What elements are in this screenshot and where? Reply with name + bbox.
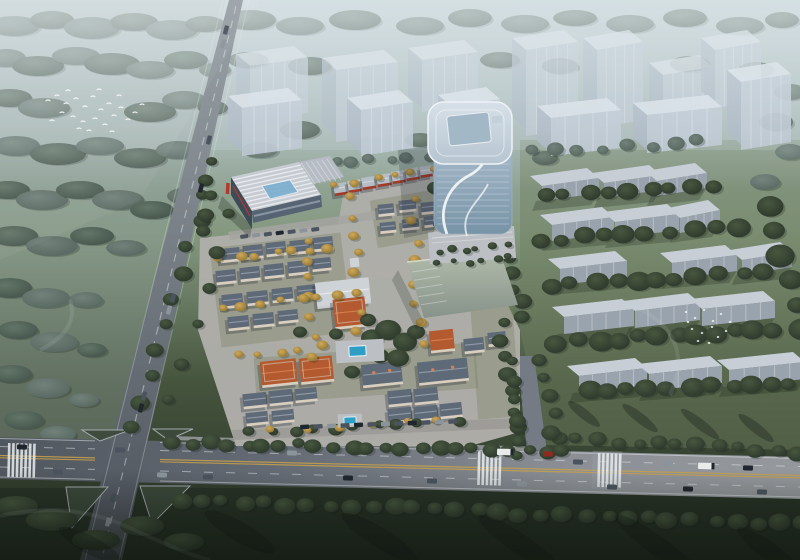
bird xyxy=(717,336,720,338)
car xyxy=(17,444,27,449)
street-tree xyxy=(498,318,510,327)
street-tree xyxy=(146,343,164,357)
lawn-tree xyxy=(561,276,577,289)
forest-tree xyxy=(106,240,146,256)
lawn-tree xyxy=(740,320,764,339)
lawn-tree xyxy=(635,380,657,397)
street-tree xyxy=(174,358,190,370)
autumn-tree xyxy=(345,192,355,200)
parked-car xyxy=(354,422,363,427)
bird xyxy=(687,321,690,323)
street-tree xyxy=(380,443,393,453)
truck-cab xyxy=(711,463,714,469)
lawn-tree xyxy=(647,142,660,152)
street-tree xyxy=(650,435,667,448)
street-tree xyxy=(541,425,560,440)
lawn-tree xyxy=(617,183,639,200)
truck-cab xyxy=(510,449,513,455)
planter-tree xyxy=(504,253,512,259)
street-tree xyxy=(746,444,764,458)
autumn-tree xyxy=(312,294,321,301)
street-tree xyxy=(731,441,744,451)
lawn-tree xyxy=(525,145,538,155)
street-tree xyxy=(358,442,374,454)
lawn-tree xyxy=(684,220,706,237)
village-house xyxy=(257,358,299,391)
parked-car xyxy=(381,421,390,426)
lawn-tree xyxy=(619,139,635,151)
lawn-tree xyxy=(665,273,682,286)
red-sign xyxy=(226,183,230,194)
autumn-tree xyxy=(354,249,363,256)
planter-tree xyxy=(505,241,513,247)
lawn-tree xyxy=(762,323,782,339)
planter-tree xyxy=(488,242,497,249)
street-tree xyxy=(514,311,530,324)
autumn-tree xyxy=(276,296,284,302)
bird xyxy=(697,340,700,342)
parked-car xyxy=(367,422,376,427)
street-tree xyxy=(507,357,518,366)
street-tree xyxy=(242,426,254,435)
forest-tree xyxy=(26,378,70,398)
bird xyxy=(708,342,711,344)
bird xyxy=(725,330,728,332)
parked-car xyxy=(340,423,349,428)
street-tree xyxy=(362,154,374,164)
autumn-tree xyxy=(302,257,313,265)
lawn-tree xyxy=(707,220,725,234)
lawn-tree xyxy=(597,145,608,154)
street-tree xyxy=(178,241,192,252)
lawn-tree xyxy=(634,226,654,241)
street-tree xyxy=(549,408,563,419)
bird xyxy=(720,313,723,315)
autumn-tree xyxy=(332,290,344,300)
street-tree xyxy=(416,442,431,453)
truck xyxy=(497,449,514,456)
street-tree xyxy=(218,439,235,452)
village-house xyxy=(414,357,469,388)
lawn-tree xyxy=(727,218,751,237)
forest-tree xyxy=(4,411,44,429)
street-tree xyxy=(611,438,626,450)
parked-car xyxy=(435,419,444,424)
street-tree xyxy=(209,246,226,259)
lawn-tree xyxy=(581,185,601,200)
lawn-tree xyxy=(617,382,633,395)
street-tree xyxy=(511,436,525,447)
street-tree xyxy=(162,394,175,404)
aerial-render xyxy=(0,0,800,560)
autumn-tree xyxy=(234,351,244,358)
village-house xyxy=(291,387,318,407)
autumn-tree xyxy=(419,340,429,347)
street-tree xyxy=(326,442,340,453)
lawn-tree xyxy=(683,267,706,285)
planter-tree xyxy=(433,260,441,266)
autumn-tree xyxy=(321,244,333,253)
lawn-tree xyxy=(682,324,708,344)
lawn-tree xyxy=(569,145,583,156)
forest-tree xyxy=(22,288,70,308)
swimming-pool xyxy=(349,346,367,357)
street-tree xyxy=(123,421,140,434)
planter-tree xyxy=(463,248,471,255)
autumn-tree xyxy=(347,267,359,277)
street-tree xyxy=(206,157,217,166)
roof-unit xyxy=(492,115,503,123)
lawn-tree xyxy=(668,137,685,151)
autumn-tree xyxy=(249,253,259,261)
planter-tree xyxy=(477,258,484,263)
village-house xyxy=(212,269,237,288)
autumn-tree xyxy=(304,313,314,321)
lawn-tree xyxy=(574,227,595,244)
street-tree xyxy=(343,156,358,167)
planter-tree xyxy=(494,255,503,262)
street-tree xyxy=(174,266,193,281)
lawn-tree xyxy=(554,235,569,247)
street-tree xyxy=(391,442,409,456)
autumn-tree xyxy=(286,246,297,254)
planter-tree xyxy=(451,258,457,263)
street-tree xyxy=(553,444,569,456)
autumn-tree xyxy=(414,240,423,247)
lawn-tree xyxy=(700,377,721,393)
street-tree xyxy=(196,225,210,236)
street-tree xyxy=(197,208,214,221)
parked-car xyxy=(448,419,457,424)
lawn-tree xyxy=(601,186,617,199)
lawn-tree xyxy=(586,273,608,291)
autumn-tree xyxy=(330,182,338,188)
autumn-tree xyxy=(293,347,302,354)
truck xyxy=(698,463,715,470)
street-tree xyxy=(464,443,477,453)
forest-tree xyxy=(130,201,174,219)
street-tree xyxy=(508,394,521,404)
autumn-tree xyxy=(348,232,359,241)
bird xyxy=(694,317,697,319)
village-house xyxy=(236,266,261,285)
street-tree xyxy=(387,156,397,164)
lawn-tree xyxy=(547,142,564,155)
roof-skylight xyxy=(447,112,492,146)
car xyxy=(287,450,297,455)
lawn-tree xyxy=(709,266,728,281)
autumn-tree xyxy=(265,426,274,433)
lawn-tree xyxy=(661,182,676,193)
autumn-tree xyxy=(277,349,288,357)
autumn-tree xyxy=(305,238,313,244)
street-tree xyxy=(507,375,522,387)
car xyxy=(543,451,553,456)
autumn-tree xyxy=(306,352,317,361)
lawn-tree xyxy=(765,245,794,268)
street-tree xyxy=(447,442,464,455)
village-house xyxy=(460,337,485,357)
autumn-tree xyxy=(350,327,361,336)
street-tree xyxy=(509,414,526,427)
lawn-tree xyxy=(705,180,722,193)
lawn-tree xyxy=(689,134,704,145)
street-tree xyxy=(634,439,646,448)
lawn-tree xyxy=(757,196,784,217)
bird xyxy=(712,320,715,322)
vignette xyxy=(0,470,800,560)
lawn-tree xyxy=(629,329,646,342)
street-tree xyxy=(145,370,160,382)
village-house xyxy=(249,312,275,331)
park-tree xyxy=(387,349,409,366)
lawn-tree xyxy=(611,225,635,243)
autumn-tree xyxy=(236,252,248,261)
park-tree xyxy=(329,329,343,340)
autumn-tree xyxy=(375,174,383,181)
autumn-tree xyxy=(234,302,246,311)
village-house xyxy=(224,315,250,334)
street-tree xyxy=(204,190,217,200)
lawn-tree xyxy=(597,383,617,399)
lawn-tree xyxy=(609,333,630,349)
street-tree xyxy=(568,433,581,443)
village-house xyxy=(262,241,287,260)
car xyxy=(743,465,753,470)
planter-tree xyxy=(447,245,457,253)
autumn-tree xyxy=(357,309,365,316)
street-tree xyxy=(251,439,270,454)
street-tree xyxy=(686,437,705,452)
car xyxy=(115,447,125,452)
lawn-tree xyxy=(555,189,569,200)
street-tree xyxy=(192,320,203,329)
autumn-tree xyxy=(298,294,309,303)
forest-tree xyxy=(70,227,114,245)
planter-tree xyxy=(466,260,475,267)
street-tree xyxy=(492,334,509,347)
street-tree xyxy=(270,440,286,452)
lawn-tree xyxy=(542,279,562,295)
lawn-tree xyxy=(740,376,763,394)
lawn-tree xyxy=(752,263,774,280)
lawn-tree xyxy=(569,332,588,347)
lawn-tree xyxy=(763,377,782,392)
bird xyxy=(685,311,688,313)
street-tree xyxy=(163,435,181,449)
lawn-tree xyxy=(596,228,613,242)
parked-car xyxy=(408,420,417,425)
autumn-tree xyxy=(312,334,320,340)
village-house xyxy=(268,409,295,428)
lawn-tree xyxy=(737,267,752,279)
autumn-tree xyxy=(255,300,265,308)
bird xyxy=(701,332,704,334)
lawn-tree xyxy=(645,272,666,288)
autumn-tree xyxy=(351,289,361,297)
street-tree xyxy=(304,439,321,453)
autumn-tree xyxy=(316,340,328,349)
swimming-pool xyxy=(344,417,356,424)
street-tree xyxy=(202,283,216,294)
autumn-tree xyxy=(275,248,283,254)
lawn-tree xyxy=(531,234,550,249)
autumn-tree xyxy=(253,351,261,357)
lawn-tree xyxy=(645,182,663,196)
bird xyxy=(729,321,732,323)
street-tree xyxy=(531,354,546,366)
street-tree xyxy=(771,445,785,456)
forest-tree xyxy=(69,393,99,407)
lawn-tree xyxy=(763,222,785,239)
lawn-tree xyxy=(682,179,702,195)
autumn-tree xyxy=(306,248,315,255)
forest-tree xyxy=(69,292,103,308)
street-tree xyxy=(524,445,536,454)
village-house xyxy=(426,329,455,357)
park-tree xyxy=(293,327,307,338)
street-tree xyxy=(588,432,606,446)
parked-car xyxy=(313,424,322,429)
autumn-tree xyxy=(303,273,312,280)
parked-car xyxy=(327,423,336,428)
autumn-tree xyxy=(348,215,356,221)
street-tree xyxy=(537,373,549,383)
planter-tree xyxy=(471,246,478,251)
car xyxy=(573,459,583,464)
bird xyxy=(711,326,714,328)
street-tree xyxy=(712,439,728,451)
village-house xyxy=(239,392,268,413)
autumn-tree xyxy=(392,172,399,177)
autumn-tree xyxy=(219,304,228,311)
bird xyxy=(691,328,694,330)
street-tree xyxy=(222,209,234,219)
parked-car xyxy=(421,420,430,425)
street-tree xyxy=(667,438,681,449)
village-house xyxy=(260,263,285,282)
parked-car xyxy=(394,421,403,426)
lawn-tree xyxy=(780,378,795,390)
park-tree xyxy=(344,366,360,378)
parked-car xyxy=(300,424,309,429)
lawn-tree xyxy=(538,188,556,202)
village-house xyxy=(274,309,299,327)
street-tree xyxy=(541,389,558,402)
lawn-tree xyxy=(662,227,678,239)
tower-shadow xyxy=(398,146,434,238)
autumn-tree xyxy=(349,179,359,187)
fountain xyxy=(350,257,360,267)
street-tree xyxy=(292,438,304,448)
street-tree xyxy=(186,439,201,451)
village-house xyxy=(265,389,294,410)
planter-tree xyxy=(436,250,443,256)
lawn-tree xyxy=(705,326,727,343)
forest-tree xyxy=(77,343,107,357)
scene-svg xyxy=(0,0,800,560)
street-tree xyxy=(160,319,173,329)
bird xyxy=(703,309,706,311)
lawn-tree xyxy=(610,273,629,288)
lawn-tree xyxy=(544,335,567,353)
car xyxy=(663,461,673,466)
